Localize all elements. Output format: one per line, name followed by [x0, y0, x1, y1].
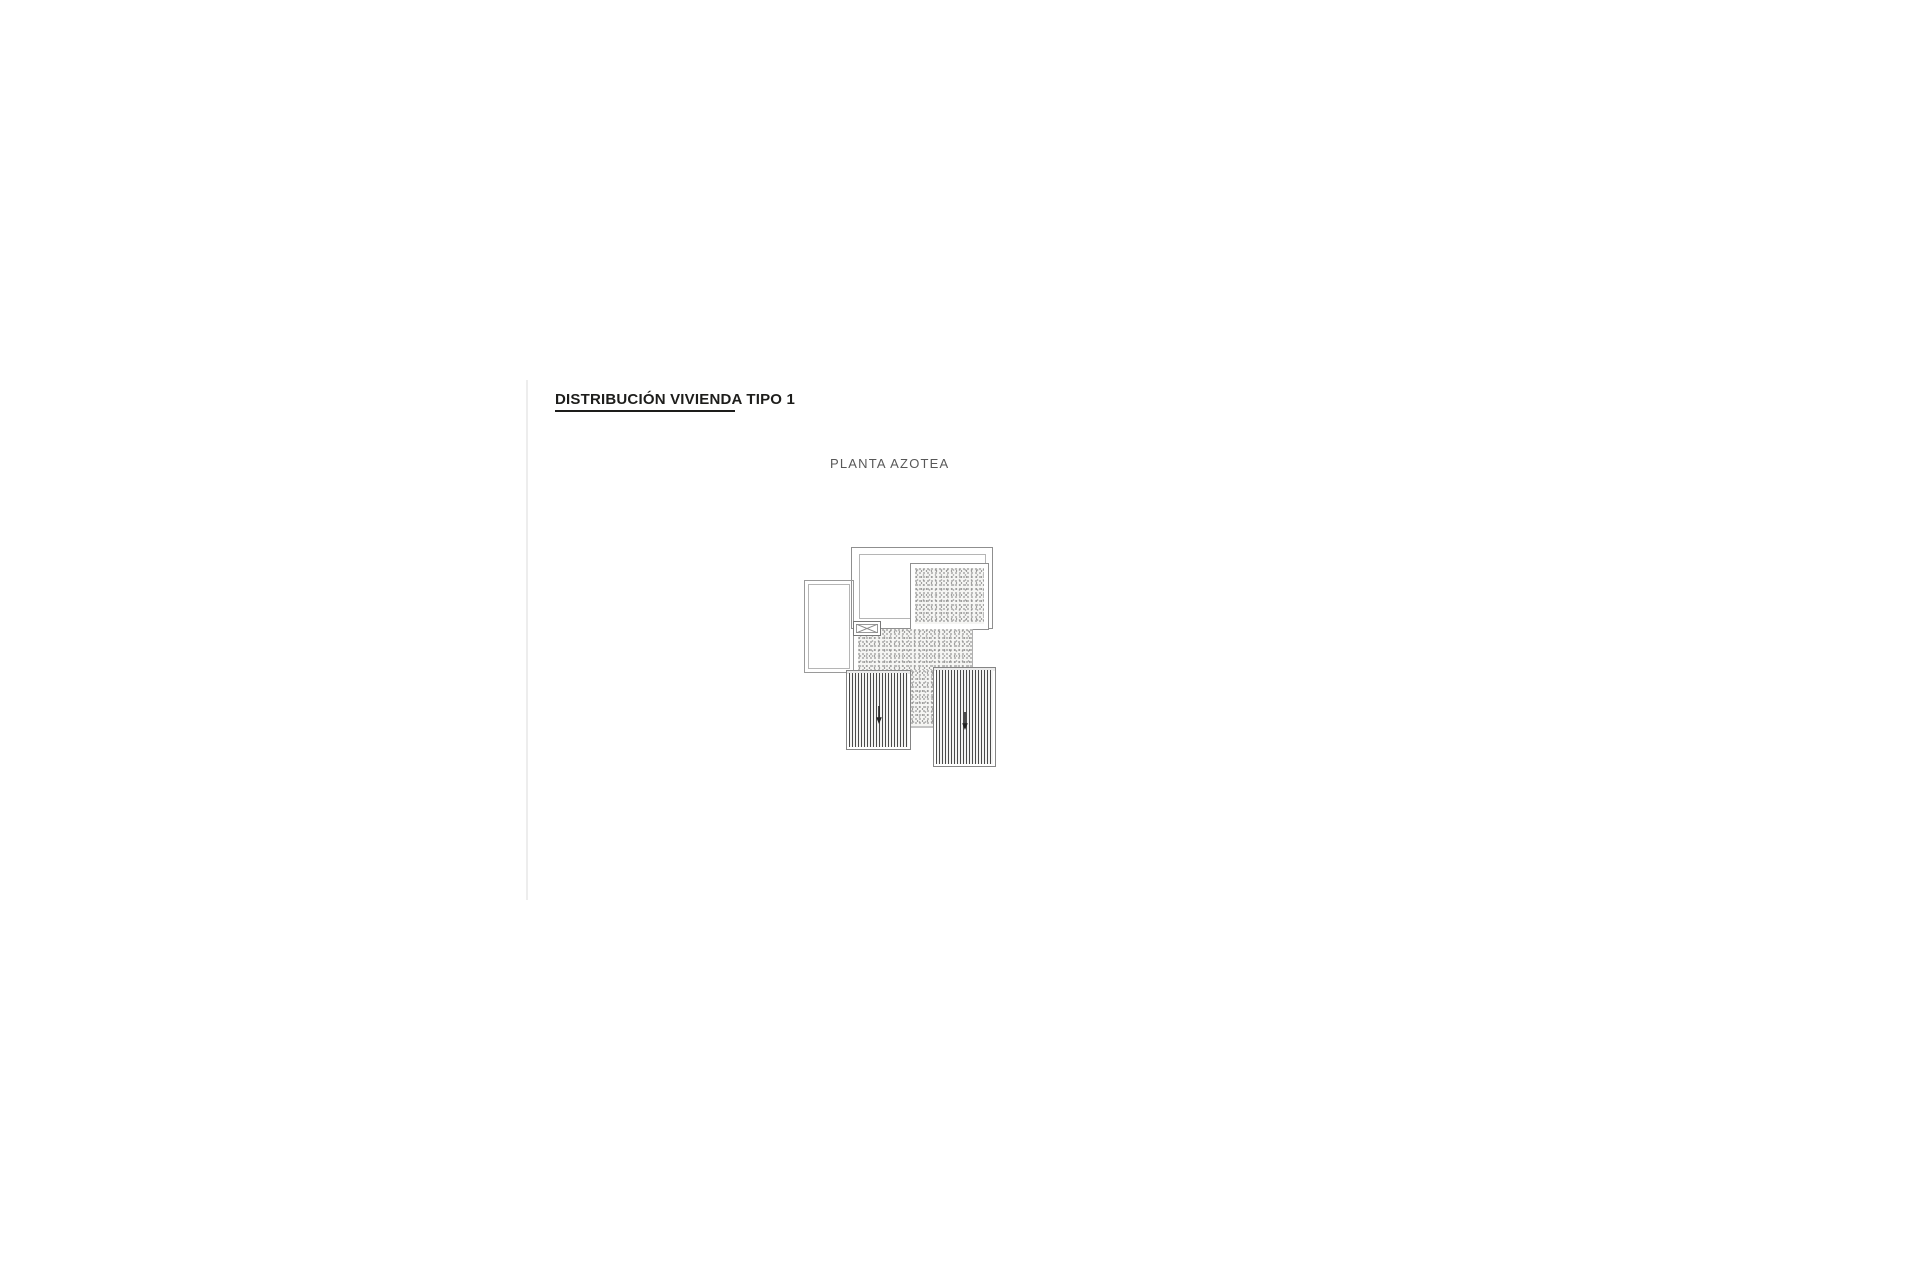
side-annex-inner-line	[808, 584, 850, 669]
skylight-x-icon	[856, 624, 878, 633]
page-title: DISTRIBUCIÓN VIVIENDA TIPO 1	[555, 391, 795, 408]
page: DISTRIBUCIÓN VIVIENDA TIPO 1 PLANTA AZOT…	[0, 0, 1920, 1280]
down-arrow-icon	[960, 712, 970, 735]
pergola-right	[933, 667, 996, 767]
title-underline	[555, 410, 735, 412]
floor-plan	[804, 547, 998, 769]
gravel-hatch	[915, 568, 984, 624]
plan-caption: PLANTA AZOTEA	[830, 456, 949, 471]
left-separator-rule	[526, 380, 528, 900]
gravel-roof-panel-top	[910, 563, 989, 630]
side-annex-outline	[804, 580, 854, 673]
down-arrow-icon	[874, 706, 884, 729]
skylight-box	[853, 621, 881, 636]
gravel-roof-area-column	[911, 670, 933, 728]
pergola-left	[846, 670, 911, 750]
